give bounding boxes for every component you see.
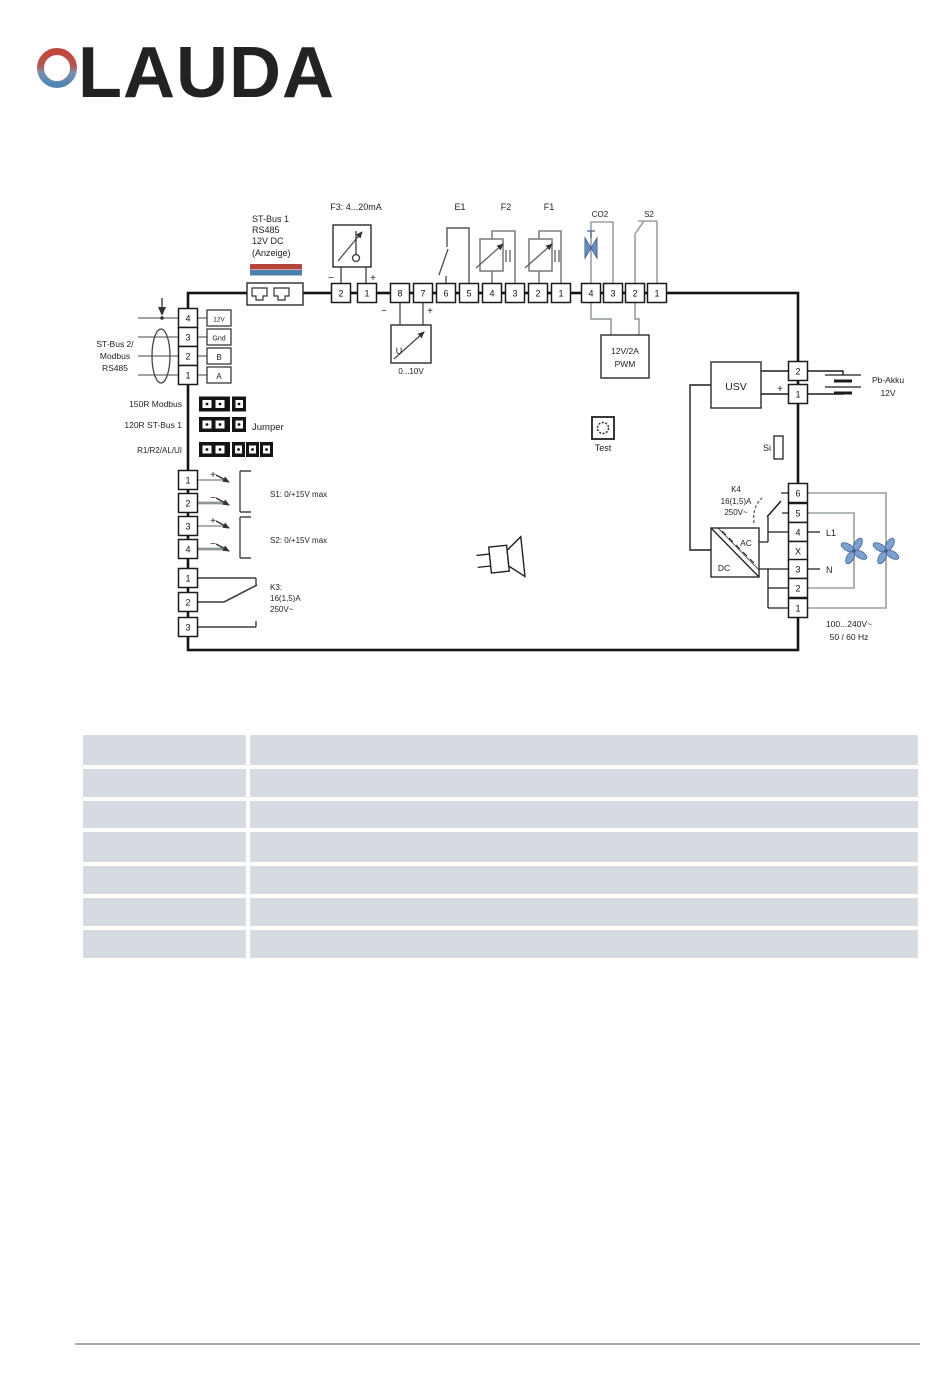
k4-label: 250V~: [724, 508, 748, 517]
terminals-left: 4 3 2 1 1 2 3 4 1 2 3: [179, 309, 198, 637]
pwm-label: 12V/2A: [611, 346, 639, 356]
mains-voltage-label: 100...240V~: [826, 619, 872, 629]
table-row: [83, 769, 918, 797]
e1-label: E1: [454, 202, 465, 212]
f2-probe: [476, 239, 510, 271]
jumper-label: Jumper: [252, 422, 284, 433]
table-cell: [250, 930, 918, 958]
terminal-number: 3: [185, 623, 190, 633]
terminal-number: 1: [185, 476, 190, 486]
lauda-logo: LAUDA: [41, 33, 335, 113]
table-cell: [83, 930, 246, 958]
l1-label: L1: [826, 528, 836, 538]
table-cell: [250, 769, 918, 797]
rs485-pin-labels: 12V Gnd B A: [207, 310, 231, 383]
minus-sign: −: [210, 493, 216, 504]
terminal-number: 2: [185, 352, 190, 362]
theta-marks-icon: [506, 250, 510, 262]
terminal-number: 1: [654, 289, 659, 299]
s1-input-label: S1: 0/+15V max: [270, 490, 327, 499]
jumper-block-stbus1: [199, 417, 246, 432]
k3-label: 16(1,5)A: [270, 594, 301, 603]
terminal-number: 2: [795, 584, 800, 594]
terminal-number: 2: [535, 289, 540, 299]
terminal-number: 5: [466, 289, 471, 299]
jumper-block-modbus: [199, 397, 246, 412]
jumper-row-label: 150R Modbus: [129, 399, 182, 409]
footer-divider: [75, 1343, 920, 1345]
table-row: [83, 898, 918, 926]
wiring-diagram: LAUDA: [0, 0, 950, 700]
terminal-number: X: [795, 547, 801, 557]
table-row: [83, 866, 918, 894]
table-cell: [83, 735, 246, 765]
ac-label: AC: [740, 538, 752, 548]
terminal-number: 1: [185, 574, 190, 584]
n-label: N: [826, 565, 833, 575]
f1-probe: [525, 239, 559, 271]
f3-label: F3: 4...20mA: [330, 202, 382, 212]
f3-transmitter: [333, 225, 371, 267]
terminal-number: 1: [185, 371, 190, 381]
st-bus2-label: Modbus: [100, 351, 130, 361]
minus-sign: −: [210, 539, 216, 550]
minus-sign: −: [328, 273, 334, 284]
table-cell: [250, 832, 918, 862]
table-cell: [250, 866, 918, 894]
red-bar: [250, 264, 302, 270]
plus-sign: +: [210, 470, 216, 481]
logo-degree-icon: [41, 52, 74, 85]
spec-table: [83, 735, 918, 962]
k3-label: K3:: [270, 583, 282, 592]
k3-relay-wires: [198, 578, 257, 627]
terminal-number: 2: [338, 289, 343, 299]
manual-page: LAUDA: [0, 0, 950, 1378]
pin-label: A: [216, 372, 222, 381]
table-cell: [250, 801, 918, 828]
terminal-number: 1: [795, 604, 800, 614]
terminal-number: 8: [397, 289, 402, 299]
logo-brand-text: LAUDA: [78, 33, 335, 113]
jumper-row-label: R1/R2/AL/UI: [137, 446, 182, 455]
k3-label: 250V~: [270, 605, 294, 614]
terminal-number: 3: [185, 522, 190, 532]
table-cell: [250, 735, 918, 765]
terminal-number: 5: [795, 509, 800, 519]
dc-label: DC: [718, 563, 730, 573]
u-range-label: 0...10V: [398, 367, 424, 376]
terminal-number: 1: [558, 289, 563, 299]
battery-label: 12V: [880, 388, 895, 398]
terminal-number: 4: [588, 289, 593, 299]
usv-label: USV: [725, 381, 747, 393]
terminal-number: 3: [512, 289, 517, 299]
minus-sign: −: [381, 306, 387, 317]
test-label: Test: [595, 443, 612, 453]
pin-label: B: [216, 353, 221, 362]
blue-bar: [250, 270, 302, 276]
speaker-icon: [475, 537, 525, 582]
table-row: [83, 735, 918, 765]
st-bus1-label: 12V DC: [252, 236, 284, 246]
terminal-number: 2: [632, 289, 637, 299]
st-bus1-label: ST-Bus 1: [252, 214, 289, 224]
battery-icon: [825, 375, 861, 393]
pwm-label: PWM: [615, 359, 636, 369]
shield-arrow-icon: [158, 307, 166, 316]
plus-sign: +: [210, 516, 216, 527]
terminal-number: 4: [185, 545, 190, 555]
terminal-number: 1: [795, 390, 800, 400]
sensor-wires: [341, 221, 657, 335]
plus-sign: +: [370, 273, 376, 284]
table-row: [83, 801, 918, 828]
battery-label: Pb-Akku: [872, 375, 904, 385]
fuse-icon: [774, 436, 783, 459]
table-cell: [83, 866, 246, 894]
terminal-number: 2: [185, 598, 190, 608]
s2-input-label: S2: 0/+15V max: [270, 536, 327, 545]
terminals-right: 2 1 6 5 4 X 3 2 1: [789, 362, 808, 618]
k4-label: K4: [731, 485, 741, 494]
f1-label: F1: [544, 202, 555, 212]
terminal-number: 3: [795, 565, 800, 575]
test-button: [592, 417, 614, 439]
k4-label: 16(1,5)A: [721, 497, 752, 506]
st-bus1-connector: [247, 264, 303, 305]
table-cell: [83, 769, 246, 797]
signal-input-wires: [198, 471, 251, 558]
si-label: Si: [763, 443, 771, 453]
plus-sign: +: [777, 384, 783, 395]
jumper-block-r1r2: [199, 442, 273, 457]
st-bus2-label: RS485: [102, 363, 128, 373]
pwm-supply-box: [601, 335, 649, 378]
terminal-number: 3: [185, 333, 190, 343]
table-row: [83, 930, 918, 958]
st-bus1-label: RS485: [252, 225, 280, 235]
theta-marks-icon: [555, 250, 559, 262]
terminal-number: 6: [795, 489, 800, 499]
terminal-number: 4: [795, 528, 800, 538]
pin-label: Gnd: [212, 336, 225, 343]
terminal-number: 1: [364, 289, 369, 299]
terminal-number: 6: [443, 289, 448, 299]
jumper-row-label: 120R ST-Bus 1: [124, 420, 182, 430]
u-converter: [391, 325, 431, 363]
terminal-number: 4: [185, 314, 190, 324]
st-bus2-label: ST-Bus 2/: [96, 339, 134, 349]
pin-label: 12V: [213, 317, 225, 324]
table-cell: [83, 832, 246, 862]
terminal-number: 7: [420, 289, 425, 299]
u-symbol: U: [396, 346, 403, 356]
terminal-number: 2: [795, 367, 800, 377]
plus-sign: +: [427, 306, 433, 317]
terminal-number: 3: [610, 289, 615, 299]
s2-label: S2: [644, 210, 654, 219]
table-cell: [250, 898, 918, 926]
st-bus1-label: (Anzeige): [252, 248, 291, 258]
f2-label: F2: [501, 202, 512, 212]
table-cell: [83, 898, 246, 926]
table-cell: [83, 801, 246, 828]
mains-frequency-label: 50 / 60 Hz: [830, 632, 869, 642]
terminal-number: 2: [185, 499, 190, 509]
table-row: [83, 832, 918, 862]
co2-label: CO2: [592, 210, 609, 219]
terminal-number: 4: [489, 289, 494, 299]
